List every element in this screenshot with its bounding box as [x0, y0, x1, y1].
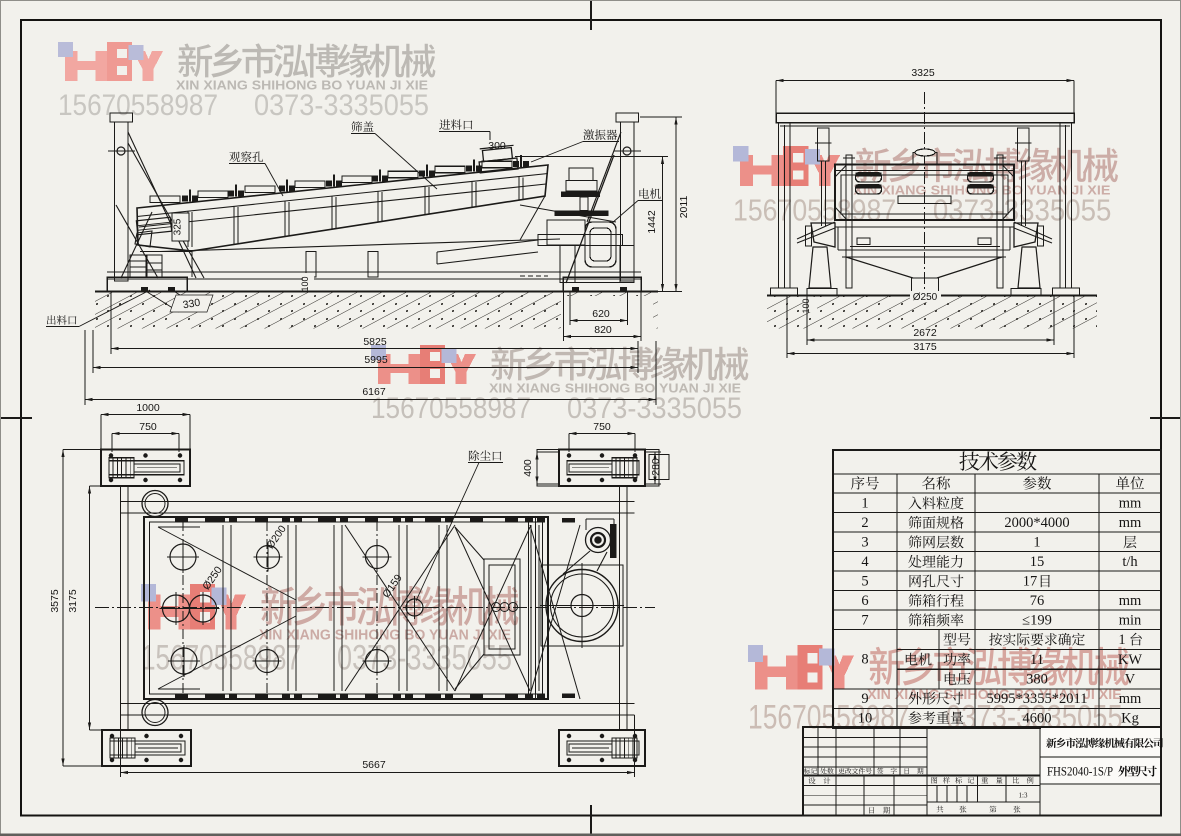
svg-text:280: 280	[650, 458, 662, 476]
svg-text:mm: mm	[1119, 496, 1142, 512]
svg-text:1000: 1000	[136, 402, 160, 414]
svg-text:11: 11	[1030, 652, 1044, 668]
svg-text:100: 100	[801, 298, 811, 313]
svg-text:mm: mm	[1119, 691, 1142, 707]
svg-text:≤199: ≤199	[1022, 613, 1052, 629]
svg-text:5995: 5995	[364, 354, 388, 366]
svg-text:3175: 3175	[913, 341, 937, 353]
svg-text:750: 750	[593, 421, 611, 433]
svg-text:3325: 3325	[911, 67, 935, 79]
svg-text:620: 620	[592, 308, 610, 320]
svg-text:76: 76	[1030, 593, 1045, 609]
svg-text:KW: KW	[1118, 652, 1142, 668]
svg-text:Kg: Kg	[1121, 711, 1139, 727]
svg-text:1: 1	[1033, 535, 1040, 551]
svg-text:325: 325	[173, 218, 184, 235]
svg-text:5825: 5825	[363, 336, 387, 348]
svg-text:mm: mm	[1119, 515, 1142, 531]
svg-text:1: 1	[861, 496, 868, 512]
svg-text:5995*3355*2011: 5995*3355*2011	[987, 691, 1088, 707]
svg-text:min: min	[1119, 613, 1142, 629]
svg-text:17: 17	[1023, 574, 1038, 590]
svg-text:5667: 5667	[362, 759, 386, 771]
svg-text:15670558987: 15670558987	[58, 89, 218, 122]
svg-text:4: 4	[861, 554, 869, 570]
svg-text:t/h: t/h	[1122, 554, 1138, 570]
svg-text:400: 400	[522, 459, 534, 477]
svg-text:15670558987: 15670558987	[748, 698, 910, 736]
svg-text:100: 100	[300, 276, 310, 291]
svg-text:0373-3335055: 0373-3335055	[254, 89, 429, 122]
svg-text:15670558987: 15670558987	[371, 392, 531, 425]
svg-text:3175: 3175	[67, 589, 79, 613]
svg-text:1:3: 1:3	[1019, 792, 1028, 800]
svg-text:V: V	[1125, 672, 1136, 688]
svg-text:7: 7	[861, 613, 868, 629]
svg-text:15: 15	[1030, 554, 1045, 570]
svg-text:6167: 6167	[362, 386, 386, 398]
svg-text:mm: mm	[1119, 593, 1142, 609]
svg-text:10: 10	[858, 711, 873, 727]
svg-text:2: 2	[861, 515, 868, 531]
svg-text:3575: 3575	[49, 589, 61, 613]
svg-text:1442: 1442	[646, 210, 658, 234]
svg-text:820: 820	[594, 324, 612, 336]
svg-text:1: 1	[1118, 632, 1125, 648]
svg-text:15670558987: 15670558987	[141, 637, 301, 677]
svg-text:4600: 4600	[1023, 711, 1052, 727]
svg-text:300: 300	[488, 140, 506, 152]
svg-text:6: 6	[861, 593, 868, 609]
svg-text:750: 750	[139, 421, 157, 433]
svg-text:3: 3	[861, 535, 868, 551]
svg-text:2011: 2011	[678, 196, 690, 219]
svg-text:Ø250: Ø250	[913, 292, 938, 303]
svg-text:8: 8	[861, 652, 868, 668]
svg-text:0373-3335055: 0373-3335055	[337, 637, 512, 677]
svg-text:380: 380	[1026, 672, 1048, 688]
svg-text:FHS2040-1S/P: FHS2040-1S/P	[1047, 765, 1113, 779]
svg-text:5: 5	[861, 574, 868, 590]
svg-text:2000*4000: 2000*4000	[1004, 515, 1069, 531]
svg-text:2672: 2672	[913, 327, 937, 339]
svg-text:9: 9	[861, 691, 868, 707]
